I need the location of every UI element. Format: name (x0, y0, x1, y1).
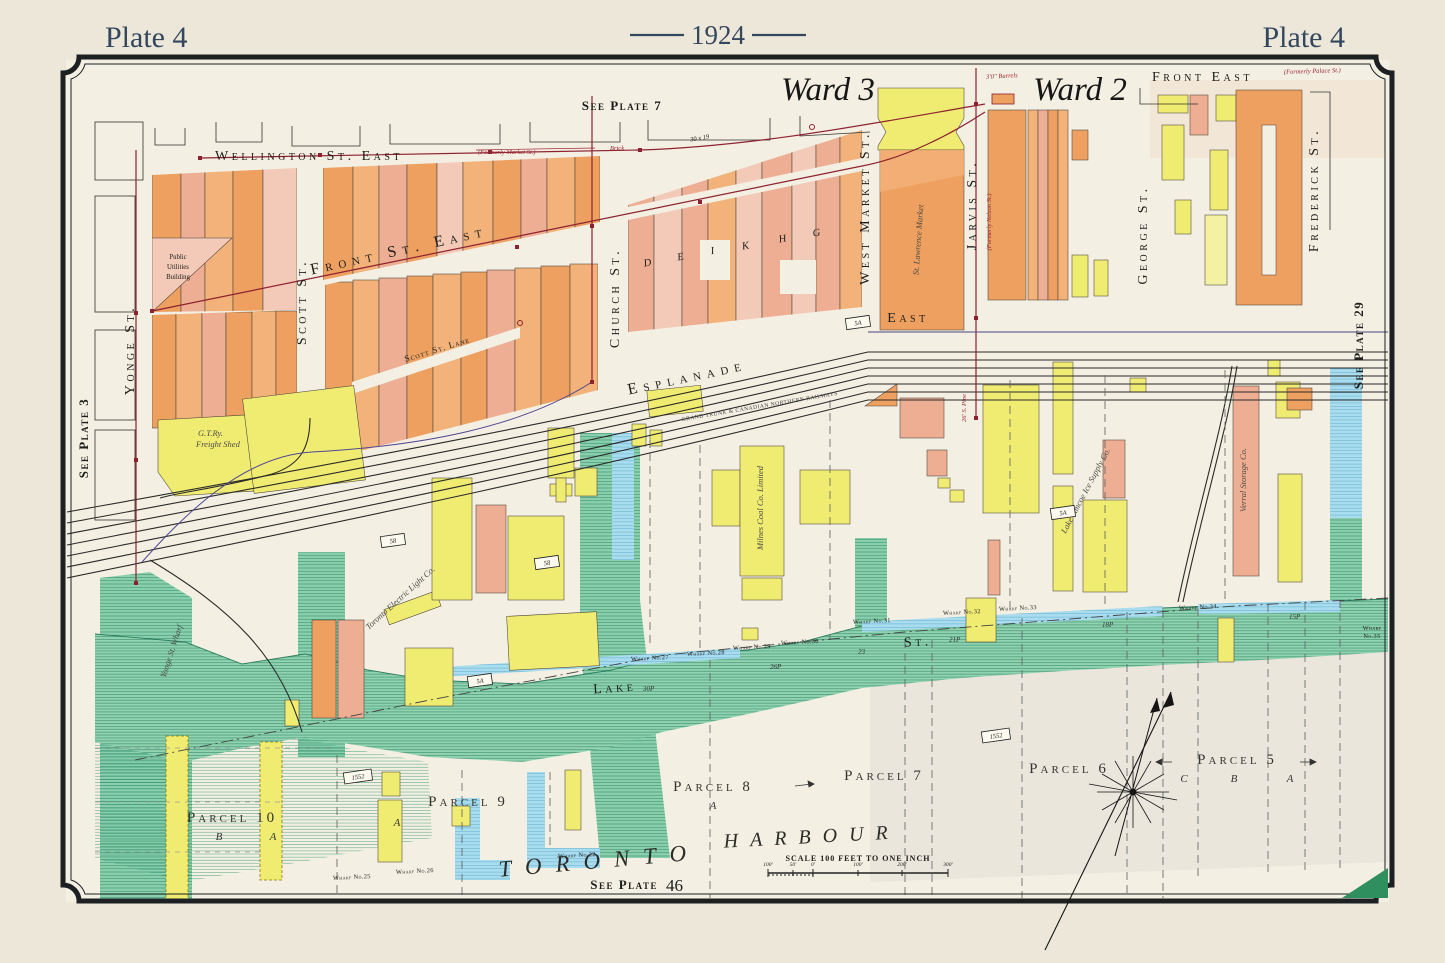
map-canvas: GRAND TRUNK & CANADIAN NORTHERN RAILWAYS (0, 0, 1445, 963)
year-label: 1924 (691, 20, 746, 50)
depth-value: 18P (1102, 621, 1114, 629)
public-utilities-label-1: Public (169, 254, 186, 261)
brick-note: Brick (610, 145, 624, 152)
scale-tick: 100' (853, 862, 863, 868)
street-label-esplanade-east: East (887, 311, 928, 326)
ref-plate-46-num: 46 (666, 876, 683, 895)
ref-plate-29: See Plate 29 (1351, 301, 1366, 390)
street-label-lake-st: St. (903, 634, 932, 650)
street-label-george: George St. (1136, 185, 1151, 284)
street-label-jarvis: Jarvis St. (965, 160, 980, 251)
street-label-frederick: Frederick St. (1307, 128, 1322, 252)
scale-tick: 50' (790, 862, 798, 868)
street-label-front-east: Front East (1152, 70, 1253, 85)
scale-tick: 100' (763, 862, 773, 868)
ref-plate-46: See Plate (590, 877, 658, 892)
milnes-coal-label: Milnes Coal Co. Limited (755, 465, 765, 551)
ward-2-label: Ward 2 (1033, 72, 1127, 108)
ward-3-label: Ward 3 (781, 72, 875, 108)
parcel-7-label: Parcel 7 (844, 768, 924, 784)
street-label-scott: Scott St. (295, 259, 310, 345)
public-utilities-label-2: Utilities (167, 264, 189, 271)
block-yonge-scott-north (152, 156, 297, 320)
plate-title-right: Plate 4 (1263, 21, 1346, 54)
verral-storage-label: Verral Storage Co. (1238, 448, 1248, 512)
svg-text:5A: 5A (476, 678, 484, 686)
parcel-10-b: B (216, 831, 223, 843)
svg-text:5A: 5A (854, 320, 862, 328)
ref-plate-3: See Plate 3 (76, 398, 91, 479)
scale-tick: 200' (897, 862, 907, 868)
parcel-5-a: A (1286, 773, 1294, 785)
wharf-label: No.35 (1363, 633, 1380, 640)
scale-tick: 300' (942, 862, 953, 868)
parcel-9-label: Parcel 9 (428, 794, 508, 810)
gtr-shed-label-1: G.T.Ry. (198, 428, 223, 438)
parcel-5-c: C (1180, 773, 1188, 785)
svg-text:5A: 5A (1059, 510, 1067, 518)
parcel-8-label: Parcel 8 (673, 779, 753, 795)
depth-value: 23 (858, 648, 866, 656)
street-label-lake: Lake (593, 680, 637, 698)
plate-title-left: Plate 4 (105, 21, 188, 54)
wharf-label: Wharf (1363, 625, 1382, 632)
pipe-note: 26' S. Pipe (961, 394, 968, 422)
public-utilities-label-3: Building (166, 274, 190, 281)
street-label-church: Church St. (608, 248, 623, 348)
street-label-wellington: Wellington St. East (215, 149, 403, 164)
street-label-west-market: West Market St. (858, 131, 873, 285)
street-label-nelson: (Formerly Nelson St.) (986, 194, 993, 251)
depth-value: 15P (1289, 613, 1301, 621)
parcel-8-a: A (709, 800, 717, 812)
ref-plate-7: See Plate 7 (582, 98, 663, 113)
parcel-10-label: Parcel 10 (187, 810, 277, 826)
street-label-yonge: Yonge St. (123, 305, 138, 395)
gtr-shed-label-2: Freight Shed (195, 439, 241, 449)
parcel-5-b: B (1231, 773, 1238, 785)
parcel-5-label: Parcel 5 (1197, 752, 1277, 768)
parcel-9-a: A (393, 817, 401, 829)
map-sheet: GRAND TRUNK & CANADIAN NORTHERN RAILWAYS (0, 0, 1445, 963)
parcel-6-label: Parcel 6 (1029, 761, 1109, 777)
depth-value: 30P (642, 685, 655, 693)
depth-value: 26P (770, 663, 782, 671)
parcel-10-a: A (269, 831, 277, 843)
ward-boundary-box (992, 94, 1014, 104)
depth-value: 21P (949, 636, 961, 644)
